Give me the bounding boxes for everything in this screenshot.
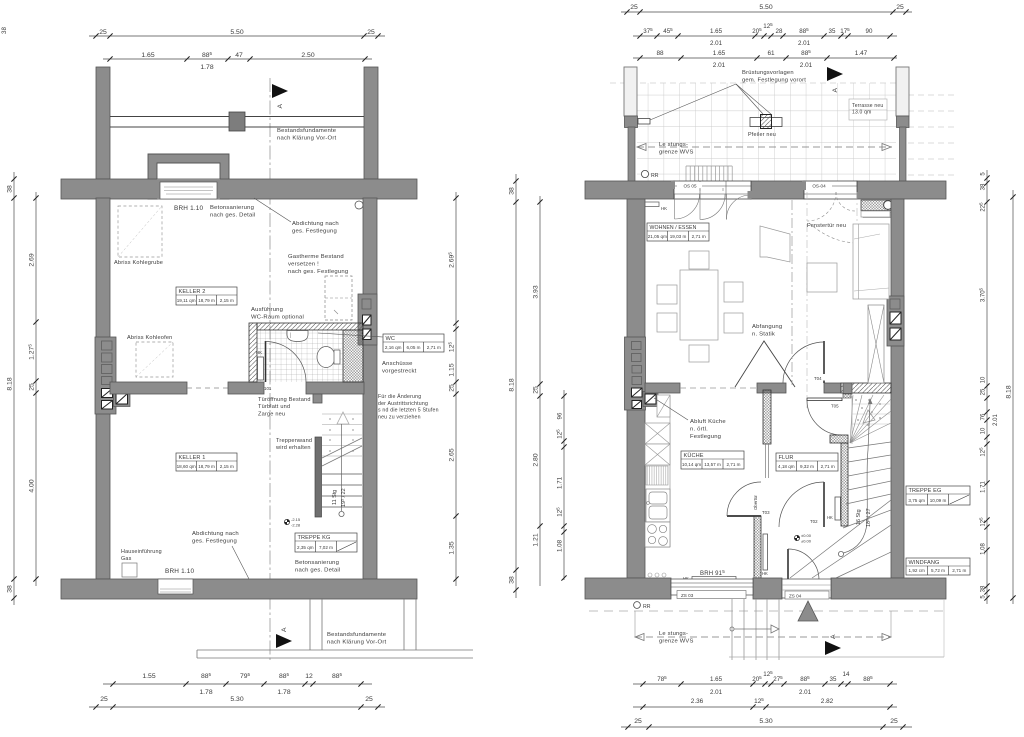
svg-text:1.78: 1.78 [200, 64, 213, 71]
svg-text:-2.28: -2.28 [291, 523, 301, 528]
svg-text:2.80: 2.80 [533, 453, 540, 466]
svg-text:25: 25 [99, 29, 107, 36]
svg-text:FLUR: FLUR [779, 455, 794, 461]
svg-text:1.65: 1.65 [141, 52, 154, 59]
svg-text:25: 25 [533, 386, 540, 394]
svg-text:Bestandsfundamente: Bestandsfundamente [327, 632, 387, 638]
svg-text:grenze WVS: grenze WVS [659, 638, 694, 644]
svg-text:WC-Raum optional: WC-Raum optional [251, 315, 304, 321]
svg-text:2,15 m: 2,15 m [220, 298, 234, 303]
svg-text:101: 101 [264, 386, 272, 391]
svg-text:2,71 m: 2,71 m [726, 462, 740, 467]
svg-text:28: 28 [776, 28, 783, 35]
svg-text:47: 47 [235, 52, 243, 59]
svg-text:T03: T03 [762, 510, 770, 515]
svg-text:TREPPE KG: TREPPE KG [298, 535, 331, 541]
svg-text:nach Klärung Vor-Ort: nach Klärung Vor-Ort [277, 136, 336, 142]
svg-text:Obertür: Obertür [753, 495, 758, 510]
svg-text:2.65: 2.65 [449, 448, 456, 461]
svg-text:1.35: 1.35 [449, 541, 456, 554]
svg-text:1.47: 1.47 [855, 50, 868, 57]
svg-text:8.18: 8.18 [509, 378, 516, 391]
svg-text:25: 25 [365, 696, 373, 703]
svg-text:2.01: 2.01 [799, 689, 812, 696]
svg-text:vorgestreckt: vorgestreckt [382, 369, 417, 375]
svg-text:1.65: 1.65 [710, 28, 723, 35]
svg-text:1,92 cm: 1,92 cm [908, 568, 925, 573]
svg-text:versetzen !: versetzen ! [288, 262, 319, 268]
svg-text:38: 38 [7, 185, 14, 193]
svg-text:3.93: 3.93 [533, 285, 540, 298]
svg-text:25: 25 [100, 696, 108, 703]
svg-text:185 / 27: 185 / 27 [865, 508, 872, 527]
svg-text:Ausführung: Ausführung [251, 307, 283, 313]
svg-text:5.50: 5.50 [759, 4, 772, 11]
svg-text:2.01: 2.01 [798, 40, 811, 47]
svg-text:4.00: 4.00 [29, 479, 36, 492]
svg-text:Abfangung: Abfangung [752, 324, 782, 330]
svg-text:-2.15: -2.15 [291, 517, 301, 522]
svg-text:14: 14 [843, 671, 850, 678]
svg-text:Hauseinführung: Hauseinführung [121, 549, 162, 555]
svg-text:nach ges. Detail: nach ges. Detail [210, 213, 255, 219]
svg-text:T02: T02 [810, 519, 818, 524]
svg-text:5.30: 5.30 [759, 718, 772, 725]
svg-text:WINDFANG: WINDFANG [909, 560, 940, 566]
svg-text:9,32 m: 9,32 m [800, 464, 814, 469]
svg-text:A: A [281, 627, 288, 632]
svg-text:Türöffnung Bestand: Türöffnung Bestand [258, 397, 311, 403]
svg-text:1.71: 1.71 [981, 481, 987, 493]
svg-text:T05: T05 [831, 404, 839, 409]
svg-text:38: 38 [1, 27, 8, 34]
svg-text:35: 35 [830, 676, 837, 683]
svg-text:Le stungs-: Le stungs- [659, 631, 688, 637]
svg-text:38: 38 [509, 576, 516, 584]
svg-text:nach ges. Detail: nach ges. Detail [295, 568, 340, 574]
svg-text:2.01: 2.01 [710, 40, 723, 47]
svg-text:38: 38 [981, 585, 987, 592]
svg-text:n. örtl.: n. örtl. [690, 427, 708, 433]
svg-text:der Austrittsrichtung: der Austrittsrichtung [378, 401, 428, 407]
svg-text:1.21: 1.21 [533, 533, 540, 546]
svg-text:Gastherme Bestand: Gastherme Bestand [288, 254, 344, 260]
svg-text:ges. Festlegung: ges. Festlegung [292, 229, 337, 235]
svg-text:21,05 qm: 21,05 qm [648, 234, 667, 239]
svg-text:BRH 915: BRH 915 [700, 569, 725, 577]
svg-text:OS 05: OS 05 [683, 184, 696, 189]
svg-text:3,75 qm: 3,75 qm [908, 498, 925, 503]
svg-text:Abriss Kohlegrube: Abriss Kohlegrube [114, 260, 163, 266]
svg-text:2,71 m: 2,71 m [952, 568, 966, 573]
svg-text:2.69: 2.69 [29, 253, 36, 266]
svg-text:grenze WVS: grenze WVS [659, 149, 694, 155]
svg-text:HK: HK [661, 206, 667, 211]
svg-text:Betonsanierung: Betonsanierung [210, 205, 254, 211]
svg-text:HK: HK [827, 515, 833, 520]
svg-text:wird erhalten: wird erhalten [275, 445, 311, 451]
svg-text:OS-04: OS-04 [812, 184, 826, 189]
svg-text:Für die Änderung: Für die Änderung [378, 393, 421, 400]
svg-text:18,60 qm: 18,60 qm [177, 464, 196, 469]
svg-text:±0.00: ±0.00 [801, 539, 812, 544]
svg-text:1.71: 1.71 [557, 476, 564, 489]
svg-text:8.18: 8.18 [7, 377, 14, 390]
svg-text:gem. Festlegung vorort: gem. Festlegung vorort [742, 77, 806, 83]
svg-text:RR: RR [651, 173, 659, 179]
svg-text:19,11 qm: 19,11 qm [177, 298, 196, 303]
svg-text:1.55: 1.55 [142, 673, 155, 680]
svg-text:25: 25 [890, 718, 898, 725]
svg-text:8.18: 8.18 [1006, 385, 1013, 398]
svg-text:2,16 qm: 2,16 qm [385, 345, 402, 350]
svg-text:T04: T04 [814, 376, 822, 381]
svg-text:5,72 m: 5,72 m [931, 568, 945, 573]
svg-text:2.01: 2.01 [993, 414, 999, 426]
svg-text:A: A [277, 104, 284, 109]
svg-text:RR: RR [643, 604, 651, 610]
svg-text:Gas: Gas [121, 556, 132, 562]
svg-text:18,79 m: 18,79 m [198, 298, 215, 303]
svg-text:11 Stg: 11 Stg [332, 490, 338, 505]
svg-text:38: 38 [7, 585, 14, 593]
svg-text:2,71 m: 2,71 m [821, 464, 835, 469]
svg-text:2.01: 2.01 [710, 689, 723, 696]
svg-text:12: 12 [305, 673, 313, 680]
svg-text:2.82: 2.82 [821, 698, 834, 705]
svg-text:2,15 m: 2,15 m [220, 464, 234, 469]
svg-text:BRH 1.10: BRH 1.10 [174, 205, 204, 212]
svg-text:38: 38 [509, 187, 516, 195]
svg-text:Türblatt und: Türblatt und [258, 404, 290, 410]
svg-text:16 Stg: 16 Stg [856, 509, 862, 525]
svg-text:19,03 m: 19,03 m [670, 234, 687, 239]
svg-text:195 / 22: 195 / 22 [340, 488, 347, 507]
svg-text:Abdichtung nach: Abdichtung nach [292, 221, 339, 227]
svg-text:Anschüsse: Anschüsse [382, 361, 413, 367]
svg-text:Abdichtung nach: Abdichtung nach [192, 531, 239, 537]
svg-text:5.30: 5.30 [230, 696, 243, 703]
svg-text:25: 25 [29, 383, 36, 391]
svg-text:TREPPE EG: TREPPE EG [909, 488, 942, 494]
svg-text:HK: HK [256, 350, 262, 355]
svg-text:s nd die letzten 5 Stufen: s nd die letzten 5 Stufen [378, 408, 439, 414]
svg-text:1.08: 1.08 [981, 543, 987, 555]
svg-text:6,05 m: 6,05 m [406, 345, 420, 350]
svg-text:5.50: 5.50 [230, 29, 243, 36]
svg-text:Treppenwand: Treppenwand [276, 438, 312, 444]
svg-text:WOHNEN / ESSEN: WOHNEN / ESSEN [650, 225, 697, 231]
svg-text:KÜCHE: KÜCHE [684, 452, 704, 459]
svg-text:WC: WC [386, 336, 396, 342]
svg-text:76: 76 [981, 413, 987, 420]
svg-text:1.08: 1.08 [557, 539, 564, 552]
svg-text:2.01: 2.01 [800, 62, 813, 69]
svg-text:10,09 m: 10,09 m [930, 498, 947, 503]
svg-text:BRH 1.10: BRH 1.10 [165, 568, 195, 575]
svg-text:Terrasse neu: Terrasse neu [852, 103, 883, 109]
svg-text:35: 35 [829, 28, 836, 35]
svg-text:90: 90 [866, 28, 873, 35]
svg-text:25: 25 [981, 388, 987, 395]
svg-text:88: 88 [656, 50, 664, 57]
svg-text:Betonsanierung: Betonsanierung [295, 560, 339, 566]
svg-text:25: 25 [896, 4, 904, 11]
svg-text:HK: HK [762, 571, 768, 576]
svg-text:13.0 qm: 13.0 qm [852, 110, 871, 116]
svg-text:10,14 qm: 10,14 qm [682, 462, 701, 467]
svg-text:2,71 m: 2,71 m [427, 345, 441, 350]
svg-text:4,18 qm: 4,18 qm [778, 464, 795, 469]
svg-text:KELLER 2: KELLER 2 [179, 289, 206, 295]
svg-text:61: 61 [767, 50, 775, 57]
svg-text:13,57 m: 13,57 m [704, 462, 721, 467]
svg-text:ges. Festlegung: ges. Festlegung [192, 539, 237, 545]
svg-text:KELLER 1: KELLER 1 [179, 455, 206, 461]
svg-text:7,02 m: 7,02 m [319, 545, 333, 550]
svg-text:A: A [830, 634, 837, 639]
svg-text:Pfeiler neu: Pfeiler neu [748, 132, 776, 138]
svg-text:Zarge neu: Zarge neu [258, 411, 285, 417]
svg-text:25: 25 [634, 718, 642, 725]
svg-text:10: 10 [981, 376, 987, 383]
svg-text:ZS 03: ZS 03 [681, 593, 694, 598]
svg-text:1.65: 1.65 [710, 676, 723, 683]
svg-text:2,71 m: 2,71 m [692, 234, 706, 239]
svg-text:1.78: 1.78 [199, 689, 212, 696]
svg-text:10: 10 [981, 427, 987, 434]
svg-text:Abluft Küche: Abluft Küche [690, 419, 726, 425]
svg-text:n. Statik: n. Statik [752, 332, 775, 338]
svg-text:1.65: 1.65 [713, 50, 726, 57]
svg-text:1.78: 1.78 [277, 689, 290, 696]
svg-text:Bestandsfundamente: Bestandsfundamente [277, 128, 337, 134]
svg-text:1.15: 1.15 [449, 363, 456, 376]
svg-text:Abriss Kohleofen: Abriss Kohleofen [127, 335, 173, 341]
svg-text:Le stungs-: Le stungs- [659, 142, 688, 148]
svg-text:nach Klärung Vor-Ort: nach Klärung Vor-Ort [327, 640, 386, 646]
svg-text:25: 25 [630, 4, 638, 11]
svg-text:25: 25 [449, 384, 456, 392]
svg-text:nach ges. Festlegung: nach ges. Festlegung [288, 269, 348, 275]
svg-text:±0.00: ±0.00 [801, 533, 812, 538]
svg-text:Festlegung: Festlegung [690, 434, 721, 440]
svg-text:ZS 04: ZS 04 [789, 594, 802, 599]
svg-text:Fenstertür neu: Fenstertür neu [807, 223, 846, 229]
svg-text:18,79 m: 18,79 m [198, 464, 215, 469]
svg-text:A: A [832, 88, 839, 93]
svg-text:25: 25 [367, 29, 375, 36]
svg-text:96: 96 [557, 412, 564, 419]
svg-text:Brüstungsvorlagen: Brüstungsvorlagen [742, 70, 794, 76]
svg-text:neu zu verziehen: neu zu verziehen [378, 414, 421, 420]
svg-text:2.50: 2.50 [301, 52, 314, 59]
svg-text:2,35 qm: 2,35 qm [297, 545, 314, 550]
svg-text:2.01: 2.01 [713, 62, 726, 69]
svg-text:2.36: 2.36 [691, 698, 704, 705]
svg-text:38: 38 [981, 183, 987, 190]
